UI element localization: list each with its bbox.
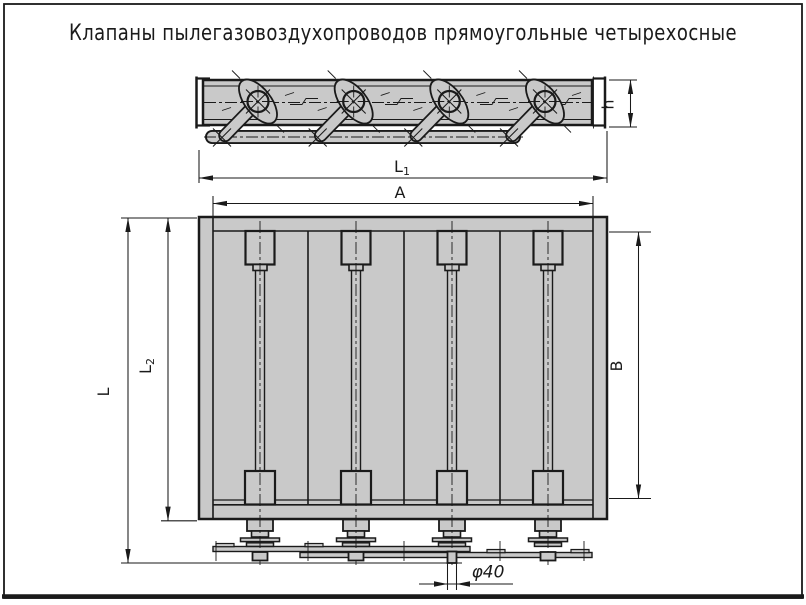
shaft-stem (448, 552, 457, 564)
dimension-label-l1: L1 (394, 157, 410, 178)
dimension-label-d40: φ40 (472, 563, 505, 583)
front-view (199, 217, 607, 565)
shaft-nut (253, 552, 268, 561)
dimension-b: B (607, 232, 651, 499)
dimension-l2: L2 (136, 218, 197, 521)
drawing-sheet: Клапаны пылегазовоздухопроводов прямоуго… (0, 0, 806, 605)
dimension-label-b: B (607, 361, 626, 372)
dimension-label-l: L (94, 387, 113, 396)
shaft-nut (349, 552, 364, 561)
dimension-a: A (213, 183, 593, 217)
dimension-label-a: A (395, 183, 406, 202)
dimension-label-h: h (599, 99, 618, 109)
dimension-d40: φ40 (419, 560, 513, 590)
drawing-title: Клапаны пылегазовоздухопроводов прямоуго… (69, 21, 737, 46)
technical-drawing: Клапаны пылегазовоздухопроводов прямоуго… (0, 0, 806, 605)
shaft-nut (541, 552, 556, 561)
top-view (197, 71, 606, 147)
dimension-label-l2: L2 (136, 358, 157, 374)
